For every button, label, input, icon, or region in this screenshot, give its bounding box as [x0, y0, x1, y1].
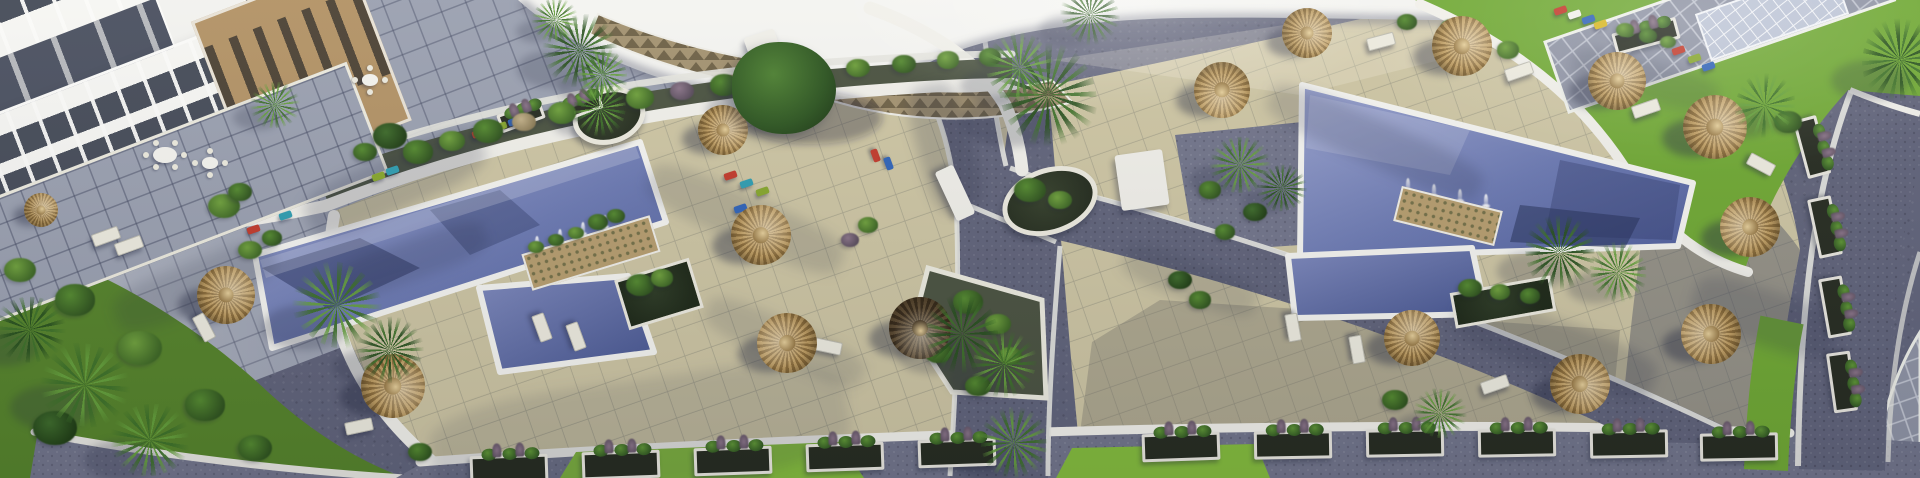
shrub: [1532, 422, 1547, 434]
aerial-resort-render: [0, 0, 1920, 478]
bush: [528, 241, 544, 253]
bush: [651, 269, 673, 286]
ornamental-grass: [1746, 420, 1755, 434]
bush: [1168, 271, 1192, 290]
patio-chair: [382, 77, 388, 83]
bush: [588, 214, 608, 230]
patio-table: [202, 157, 218, 168]
parasol-cap: [715, 122, 732, 139]
planter-box: [582, 450, 661, 478]
bush: [1490, 284, 1510, 300]
ornamental-grass: [1300, 418, 1309, 432]
parasol-cap: [1700, 323, 1722, 345]
bush: [548, 102, 576, 124]
patio-chair: [352, 77, 358, 83]
bush: [858, 217, 878, 233]
bush: [403, 140, 433, 163]
patio-chair: [172, 140, 178, 146]
patio-chair: [207, 172, 213, 178]
shrub: [1644, 423, 1659, 435]
bush: [1397, 14, 1417, 30]
shrub: [1196, 425, 1211, 438]
bush: [607, 209, 625, 223]
bush: [473, 119, 503, 142]
bush: [512, 113, 536, 132]
bush: [373, 123, 407, 150]
planter-box: [1700, 432, 1778, 461]
bush: [937, 51, 959, 68]
bush: [1048, 191, 1072, 210]
bush: [238, 241, 262, 260]
patio-chair: [181, 152, 187, 158]
bush: [568, 227, 584, 239]
bush: [408, 443, 432, 462]
bush: [1660, 36, 1676, 48]
planter-box: [806, 442, 885, 473]
ornamental-grass: [1636, 417, 1645, 431]
planter-box: [1590, 429, 1668, 458]
parasol-cap: [1402, 328, 1423, 349]
bush: [118, 331, 162, 365]
bush: [1215, 224, 1235, 240]
parasol-cap: [36, 205, 47, 216]
shrub: [1754, 426, 1769, 438]
bush: [1189, 291, 1211, 308]
shrub: [636, 443, 651, 456]
patio-chair: [143, 152, 149, 158]
bush: [892, 55, 916, 74]
bush: [238, 435, 272, 462]
planter-box: [1142, 432, 1221, 463]
planter-box: [470, 454, 549, 478]
bush: [1382, 390, 1408, 410]
bush: [1520, 288, 1540, 304]
patio-chair: [222, 160, 228, 166]
patio-table: [362, 74, 378, 85]
bush: [626, 274, 654, 296]
parasol-cap: [1454, 38, 1471, 55]
shrub: [524, 447, 539, 460]
parasol-cap: [1706, 118, 1724, 136]
parasol-cap: [752, 226, 771, 245]
bush: [1639, 29, 1657, 43]
bush: [353, 143, 377, 162]
patio-chair: [153, 140, 159, 146]
bush: [439, 131, 465, 151]
bush: [1616, 23, 1634, 37]
bush: [262, 230, 282, 246]
planter-box: [694, 446, 773, 477]
bush: [228, 183, 252, 202]
ornamental-grass: [1524, 416, 1533, 430]
ornamental-grass: [1277, 419, 1286, 433]
parasol-cap: [1739, 216, 1761, 238]
parasol-cap: [1298, 24, 1316, 42]
round-tree: [732, 42, 836, 134]
patio-chair: [192, 160, 198, 166]
bush: [1458, 279, 1482, 298]
bush: [670, 82, 694, 101]
bush: [548, 234, 564, 246]
patio-chair: [367, 89, 373, 95]
bush: [185, 389, 225, 420]
parasol-cap: [1569, 373, 1591, 395]
shrub: [1308, 424, 1323, 436]
parasol-cap: [217, 286, 234, 303]
parasol-cap: [1607, 71, 1626, 90]
bench: [1114, 149, 1169, 211]
shrub: [748, 439, 763, 452]
bush: [841, 233, 859, 247]
bush: [1014, 178, 1046, 203]
parasol-cap: [1212, 80, 1232, 100]
planter-box: [1254, 430, 1332, 459]
shrub: [860, 435, 875, 448]
bush: [4, 258, 36, 283]
ornamental-grass: [1723, 421, 1732, 435]
ornamental-grass: [1501, 417, 1510, 431]
ornamental-grass: [1389, 417, 1398, 431]
bush: [626, 87, 654, 109]
parasol-cap: [776, 332, 798, 354]
bush: [1497, 41, 1519, 58]
ornamental-grass: [1613, 418, 1622, 432]
planter-box: [1478, 428, 1556, 457]
bush: [846, 59, 870, 78]
